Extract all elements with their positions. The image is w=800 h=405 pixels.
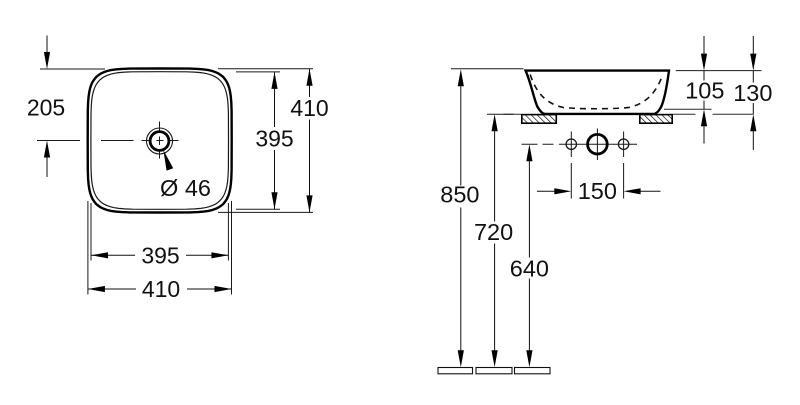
svg-text:410: 410 bbox=[142, 276, 180, 302]
svg-text:Ø 46: Ø 46 bbox=[160, 175, 211, 201]
svg-text:850: 850 bbox=[440, 182, 479, 208]
svg-text:640: 640 bbox=[510, 255, 549, 281]
svg-text:720: 720 bbox=[474, 219, 513, 245]
svg-text:205: 205 bbox=[27, 95, 65, 121]
svg-text:130: 130 bbox=[733, 80, 772, 106]
svg-text:105: 105 bbox=[685, 78, 724, 104]
svg-text:395: 395 bbox=[141, 243, 179, 269]
svg-text:150: 150 bbox=[578, 178, 617, 204]
svg-text:395: 395 bbox=[255, 126, 293, 152]
svg-text:410: 410 bbox=[290, 95, 328, 121]
